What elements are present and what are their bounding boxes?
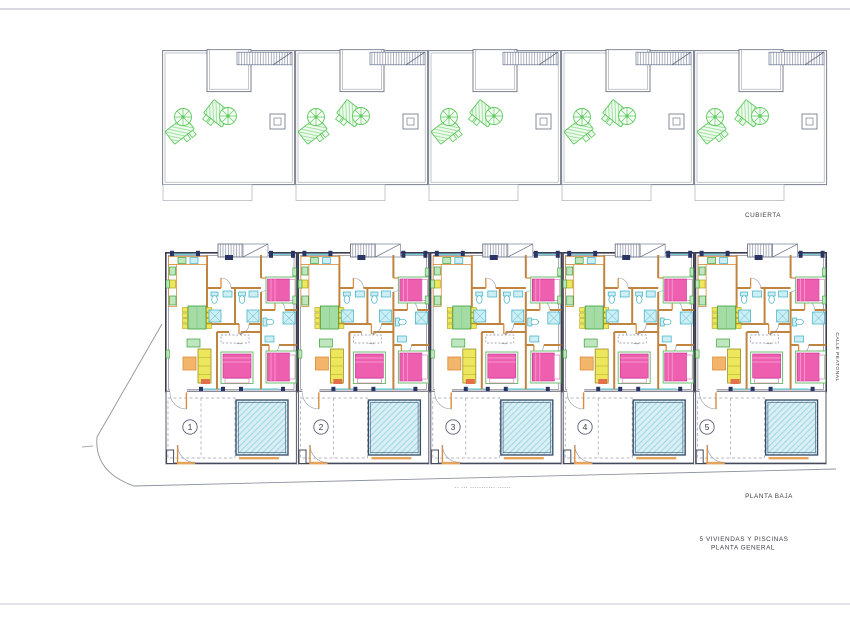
svg-text:3: 3 — [451, 422, 456, 432]
site-plan-drawing: CUBIERTA -- --- ----------- ------ 1 2 3 — [0, 0, 850, 620]
unit-number-2: 2 — [314, 420, 328, 434]
unit-number-5: 5 — [700, 420, 714, 434]
roof-unit-1 — [163, 50, 295, 201]
roof-unit-4 — [562, 50, 694, 201]
roof-plan: CUBIERTA — [163, 50, 827, 219]
roof-unit-5 — [695, 50, 827, 201]
street-tick — [82, 446, 93, 447]
planta-baja-label: PLANTA BAJA — [745, 493, 793, 500]
cubierta-label: CUBIERTA — [745, 212, 781, 219]
unit-number-3: 3 — [446, 420, 460, 434]
roof-unit-2 — [296, 50, 428, 201]
title-block: 5 VIVIENDAS Y PISCINAS PLANTA GENERAL — [700, 536, 789, 552]
roof-unit-3 — [429, 50, 561, 201]
title-line-2: PLANTA GENERAL — [711, 545, 775, 552]
unit-number-1: 1 — [183, 420, 197, 434]
svg-text:1: 1 — [188, 422, 193, 432]
ground-floor-plan: 1 2 3 4 5 PLANTA BAJA CALLE PEATONAL — [166, 244, 840, 500]
svg-text:5: 5 — [705, 422, 710, 432]
floor-unit-5 — [695, 244, 826, 465]
calle-peatonal-label: CALLE PEATONAL — [834, 332, 840, 381]
svg-text:4: 4 — [583, 422, 588, 432]
unit-number-4: 4 — [578, 420, 592, 434]
svg-text:2: 2 — [319, 422, 324, 432]
street-faint-label: -- --- ----------- ------ — [455, 485, 512, 490]
title-line-1: 5 VIVIENDAS Y PISCINAS — [700, 536, 789, 543]
